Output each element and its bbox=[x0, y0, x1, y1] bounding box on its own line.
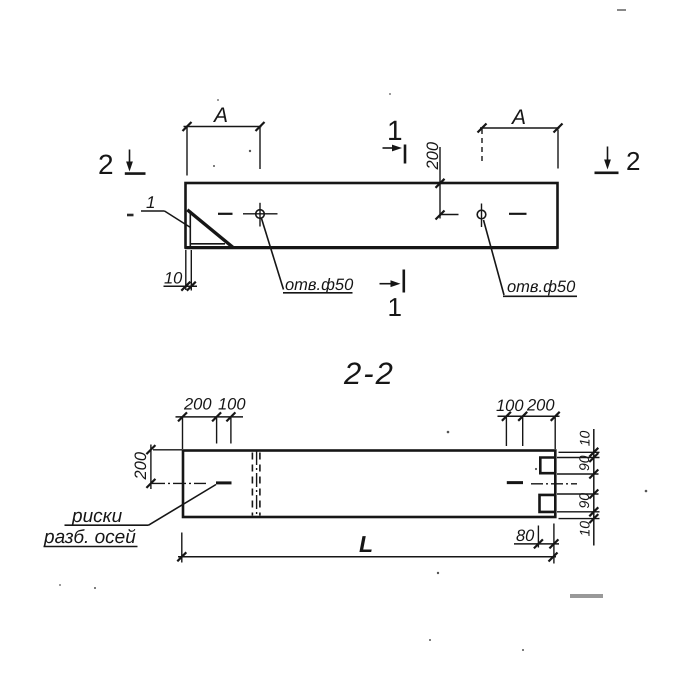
svg-text:200: 200 bbox=[183, 396, 212, 414]
svg-text:2: 2 bbox=[98, 149, 114, 180]
svg-text:разб. осей: разб. осей bbox=[43, 527, 136, 548]
svg-text:2-2: 2-2 bbox=[343, 356, 395, 391]
svg-text:L: L bbox=[359, 531, 373, 557]
svg-text:отв.ф50: отв.ф50 bbox=[507, 278, 576, 296]
svg-text:90: 90 bbox=[576, 493, 592, 509]
svg-text:200: 200 bbox=[526, 397, 555, 415]
svg-text:100: 100 bbox=[218, 396, 246, 414]
svg-text:A: A bbox=[212, 104, 228, 127]
svg-text:90: 90 bbox=[576, 455, 592, 471]
svg-text:10: 10 bbox=[577, 431, 593, 447]
svg-text:отв.ф50: отв.ф50 bbox=[285, 276, 354, 294]
svg-text:2: 2 bbox=[626, 146, 640, 176]
svg-text:10: 10 bbox=[164, 270, 183, 288]
svg-text:A: A bbox=[510, 106, 526, 129]
svg-text:10: 10 bbox=[577, 521, 593, 537]
svg-text:1: 1 bbox=[388, 292, 402, 322]
svg-text:1: 1 bbox=[146, 193, 155, 212]
svg-text:200: 200 bbox=[424, 141, 442, 170]
svg-text:100: 100 bbox=[496, 397, 524, 415]
svg-text:200: 200 bbox=[132, 451, 150, 480]
svg-text:риски: риски bbox=[71, 506, 123, 527]
svg-text:1: 1 bbox=[387, 115, 403, 146]
svg-text:80: 80 bbox=[516, 527, 535, 545]
